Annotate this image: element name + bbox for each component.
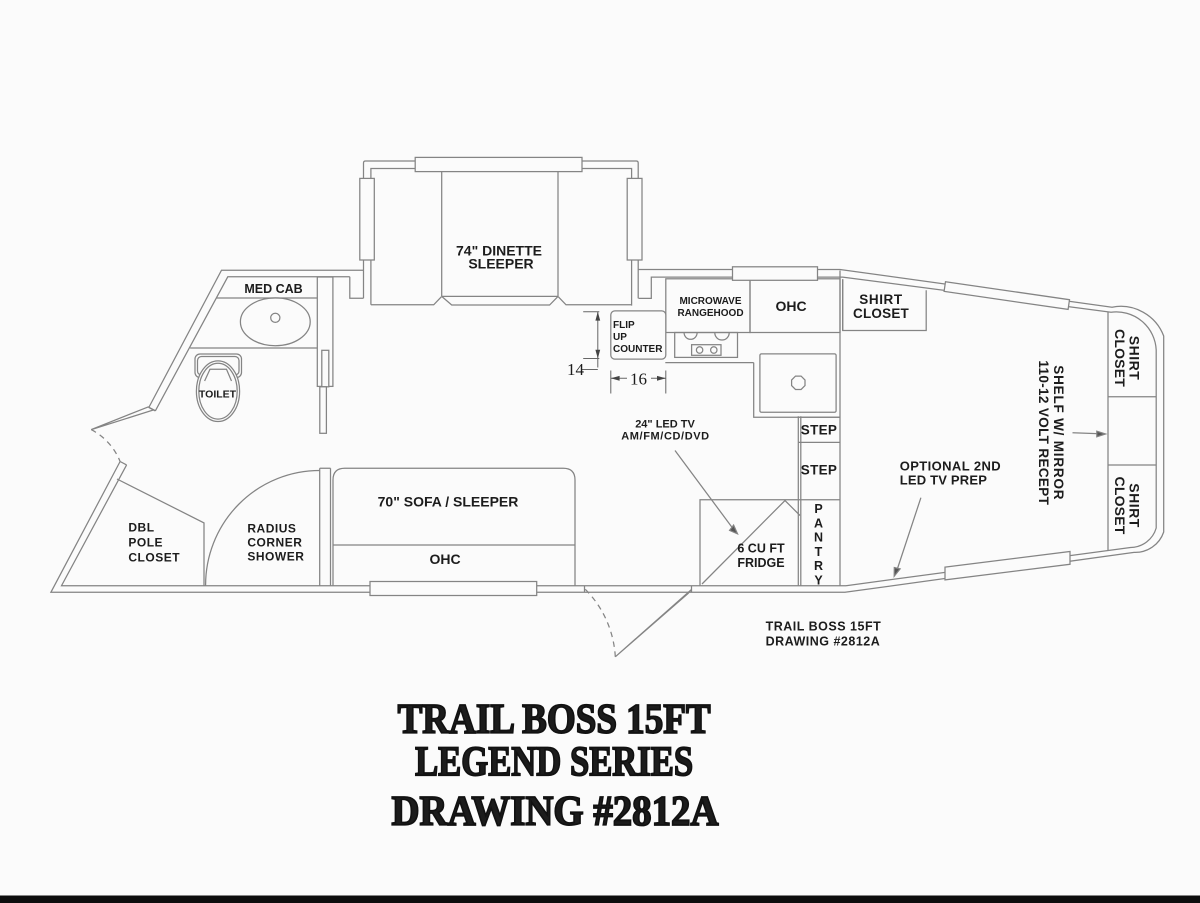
svg-text:OHC: OHC	[775, 298, 806, 314]
svg-text:FRIDGE: FRIDGE	[737, 556, 784, 570]
svg-text:SHIRT: SHIRT	[859, 292, 903, 307]
svg-text:SHOWER: SHOWER	[247, 550, 304, 564]
svg-text:P: P	[814, 502, 822, 516]
svg-text:CORNER: CORNER	[247, 536, 302, 550]
svg-text:UP: UP	[613, 332, 627, 343]
svg-text:LED TV PREP: LED TV PREP	[900, 473, 988, 488]
svg-text:T: T	[815, 545, 823, 559]
svg-text:Y: Y	[814, 574, 823, 588]
svg-text:6 CU FT: 6 CU FT	[737, 542, 785, 556]
svg-text:COUNTER: COUNTER	[613, 344, 663, 355]
svg-text:SLEEPER: SLEEPER	[468, 256, 533, 272]
svg-text:STEP: STEP	[801, 423, 837, 438]
svg-text:OPTIONAL 2ND: OPTIONAL 2ND	[900, 459, 1001, 474]
svg-text:70" SOFA / SLEEPER: 70" SOFA / SLEEPER	[378, 494, 519, 510]
svg-text:R: R	[814, 559, 823, 573]
svg-text:16: 16	[630, 370, 647, 389]
svg-text:CLOSET: CLOSET	[1112, 329, 1128, 387]
svg-text:14: 14	[567, 360, 585, 379]
svg-text:RANGEHOOD: RANGEHOOD	[677, 308, 743, 319]
svg-text:RADIUS: RADIUS	[247, 522, 296, 536]
svg-text:N: N	[814, 531, 823, 545]
svg-text:STEP: STEP	[801, 463, 837, 478]
svg-text:POLE: POLE	[128, 536, 163, 550]
svg-text:MICROWAVE: MICROWAVE	[679, 296, 741, 307]
svg-text:A: A	[814, 516, 823, 530]
svg-text:DRAWING #2812A: DRAWING #2812A	[766, 635, 881, 649]
svg-text:AM/FM/CD/DVD: AM/FM/CD/DVD	[621, 431, 709, 443]
svg-text:24" LED TV: 24" LED TV	[635, 419, 695, 431]
svg-text:TRAIL BOSS 15FT: TRAIL BOSS 15FT	[398, 697, 711, 743]
svg-text:CLOSET: CLOSET	[1112, 477, 1128, 535]
svg-text:110-12 VOLT RECEPT: 110-12 VOLT RECEPT	[1036, 360, 1051, 505]
svg-text:LEGEND SERIES: LEGEND SERIES	[415, 740, 693, 786]
svg-text:SHELF W/ MIRROR: SHELF W/ MIRROR	[1051, 365, 1066, 500]
svg-text:FLIP: FLIP	[613, 320, 635, 331]
svg-text:DRAWING #2812A: DRAWING #2812A	[392, 789, 720, 835]
svg-text:CLOSET: CLOSET	[128, 551, 180, 565]
svg-text:CLOSET: CLOSET	[853, 306, 910, 321]
svg-text:OHC: OHC	[429, 551, 460, 567]
svg-text:DBL: DBL	[128, 521, 154, 535]
svg-text:MED CAB: MED CAB	[244, 282, 302, 296]
svg-text:TRAIL BOSS 15FT: TRAIL BOSS 15FT	[766, 620, 882, 634]
svg-text:TOILET: TOILET	[199, 389, 237, 401]
